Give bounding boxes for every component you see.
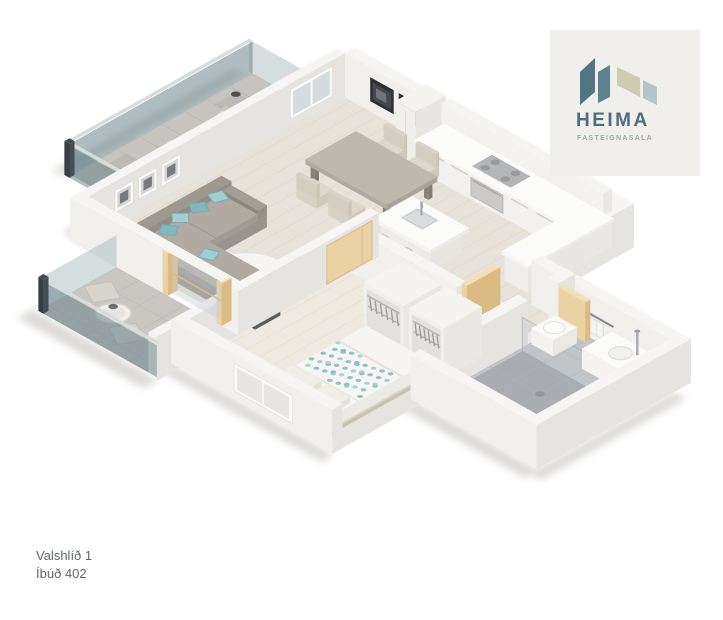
- duvet-dot: [332, 348, 338, 351]
- brand-name: HEIMA: [576, 110, 650, 132]
- duvet-dot: [357, 395, 363, 398]
- duvet-dot: [361, 388, 367, 391]
- duvet-dot: [351, 369, 357, 372]
- duvet-dot: [376, 376, 382, 379]
- duvet-dot: [329, 354, 335, 357]
- duvet-dot: [340, 349, 346, 352]
- duvet-dot: [344, 383, 350, 386]
- teal-pillow-2: [172, 213, 189, 223]
- glass-post-sw-front: [64, 141, 69, 178]
- duvet-dot: [335, 382, 341, 385]
- logo-shape-2: [598, 65, 610, 103]
- duvet-dot: [354, 361, 360, 364]
- logo-shape-4: [643, 80, 657, 105]
- real-estate-floorplan-page: HEIMA FASTEIGNASALA Valshlíð 1 Íbúð 402: [0, 0, 723, 620]
- duvet-dot: [334, 364, 340, 367]
- duvet-dot: [317, 360, 323, 363]
- duvet-dot: [367, 373, 373, 376]
- glass2-post-sw-front: [38, 277, 43, 314]
- sliding-door-post-2-side: [222, 278, 232, 326]
- duvet-dot: [379, 369, 385, 372]
- balcony-plant-pot: [231, 92, 241, 97]
- dining-chair-1-back-side: [404, 134, 407, 150]
- duvet-dot: [362, 364, 368, 367]
- cooktop-burner: [491, 160, 501, 165]
- address-street: Valshlíð 1: [36, 547, 92, 565]
- duvet-dot: [372, 383, 378, 386]
- wall-bath-east-front: [526, 420, 536, 470]
- listing-address: Valshlíð 1 Íbúð 402: [36, 547, 92, 584]
- duvet-dot: [325, 361, 331, 364]
- wall-bath-north-side: [681, 339, 691, 389]
- island-faucet-spout: [421, 201, 422, 207]
- duvet-dot: [322, 369, 328, 372]
- teal-pillow-1: [189, 202, 209, 213]
- cooktop-burner: [501, 176, 511, 181]
- duvet-dot: [337, 357, 343, 360]
- brand-tagline: FASTEIGNASALA: [577, 135, 653, 142]
- duvet-dot: [347, 376, 353, 379]
- toilet-lid: [544, 322, 565, 334]
- duvet-dot: [352, 385, 358, 388]
- sliding-door-post-1-front: [163, 251, 168, 296]
- duvet-dot: [339, 373, 345, 376]
- heima-logo-mark: [550, 30, 700, 176]
- logo-shape-3: [617, 67, 640, 97]
- wall-living-south-b-side: [238, 286, 248, 336]
- duvet-dot: [320, 352, 326, 355]
- vanity-basin: [609, 347, 633, 360]
- duvet-dot: [330, 370, 336, 373]
- duvet-dot: [356, 379, 362, 382]
- duvet-dot: [346, 360, 352, 363]
- dining-chair-2-back-side: [436, 152, 439, 168]
- duvet-dot: [327, 379, 333, 382]
- address-unit: Íbúð 402: [36, 565, 92, 583]
- wall-bedroom-south-side: [332, 404, 342, 454]
- shower-drain: [535, 391, 545, 396]
- bath-door-leaf-side: [585, 300, 590, 343]
- dining-chair-3-back-side: [316, 183, 319, 199]
- glass2-post-sw-side: [43, 277, 48, 314]
- agency-logo-panel: HEIMA FASTEIGNASALA: [550, 30, 700, 176]
- logo-shape-1: [580, 58, 595, 105]
- cooktop-burner: [481, 165, 491, 170]
- cooktop-burner: [511, 171, 521, 176]
- duvet-dot: [309, 357, 315, 360]
- dining-chair-4-back-side: [348, 201, 351, 217]
- duvet-dot: [384, 379, 390, 382]
- duvet-dot: [342, 367, 348, 370]
- duvet-dot: [364, 382, 370, 385]
- teal-pillow-3: [159, 225, 178, 236]
- duvet-dot: [314, 367, 320, 370]
- glass-post-sw-side: [70, 141, 75, 178]
- duvet-dot: [388, 372, 394, 375]
- faucet-head: [634, 330, 640, 333]
- duvet-dot: [305, 364, 311, 367]
- duvet-dot: [359, 370, 365, 373]
- teapot: [108, 304, 118, 309]
- duvet-dot: [349, 352, 355, 355]
- duvet-dot: [371, 367, 377, 370]
